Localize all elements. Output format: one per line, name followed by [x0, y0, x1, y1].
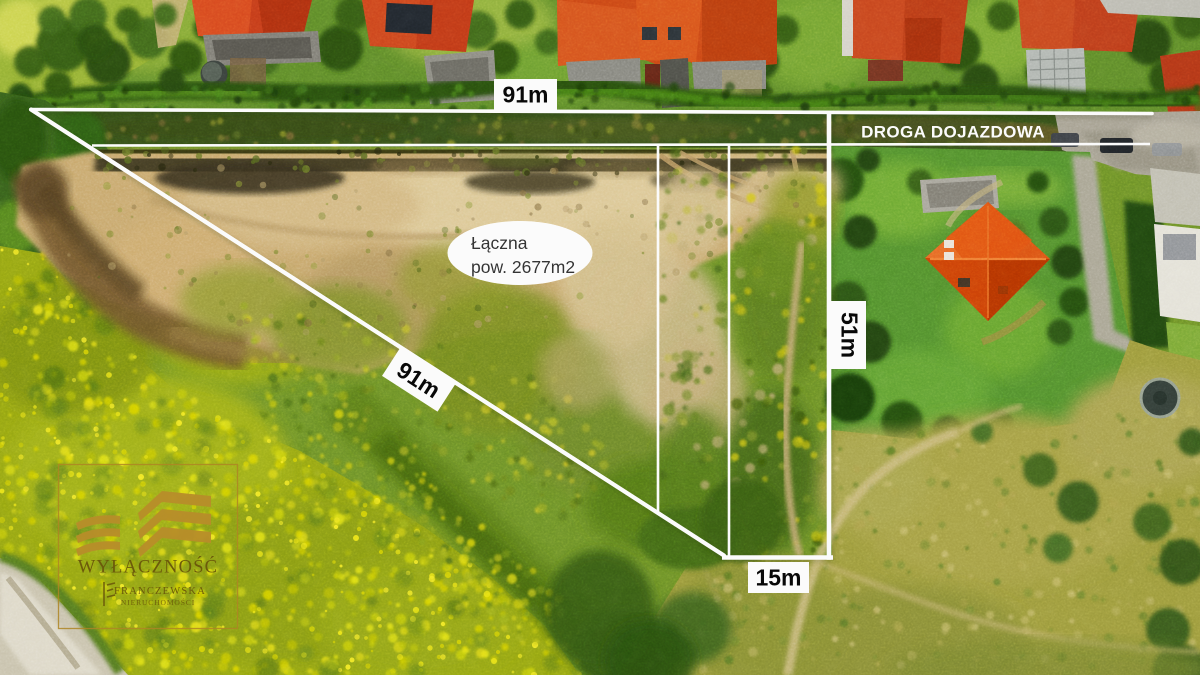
svg-text:WYŁĄCZNOŚĆ: WYŁĄCZNOŚĆ	[78, 556, 218, 578]
svg-text:51m: 51m	[837, 312, 863, 358]
svg-text:NIERUCHOMOŚCI: NIERUCHOMOŚCI	[121, 597, 195, 607]
svg-text:FRANCZEWSKA: FRANCZEWSKA	[114, 586, 206, 597]
svg-text:pow. 2677m2: pow. 2677m2	[471, 257, 575, 277]
svg-text:91m: 91m	[502, 82, 548, 108]
svg-text:15m: 15m	[755, 565, 801, 591]
svg-text:DROGA DOJAZDOWA: DROGA DOJAZDOWA	[861, 123, 1045, 142]
svg-text:Łączna: Łączna	[471, 233, 528, 253]
